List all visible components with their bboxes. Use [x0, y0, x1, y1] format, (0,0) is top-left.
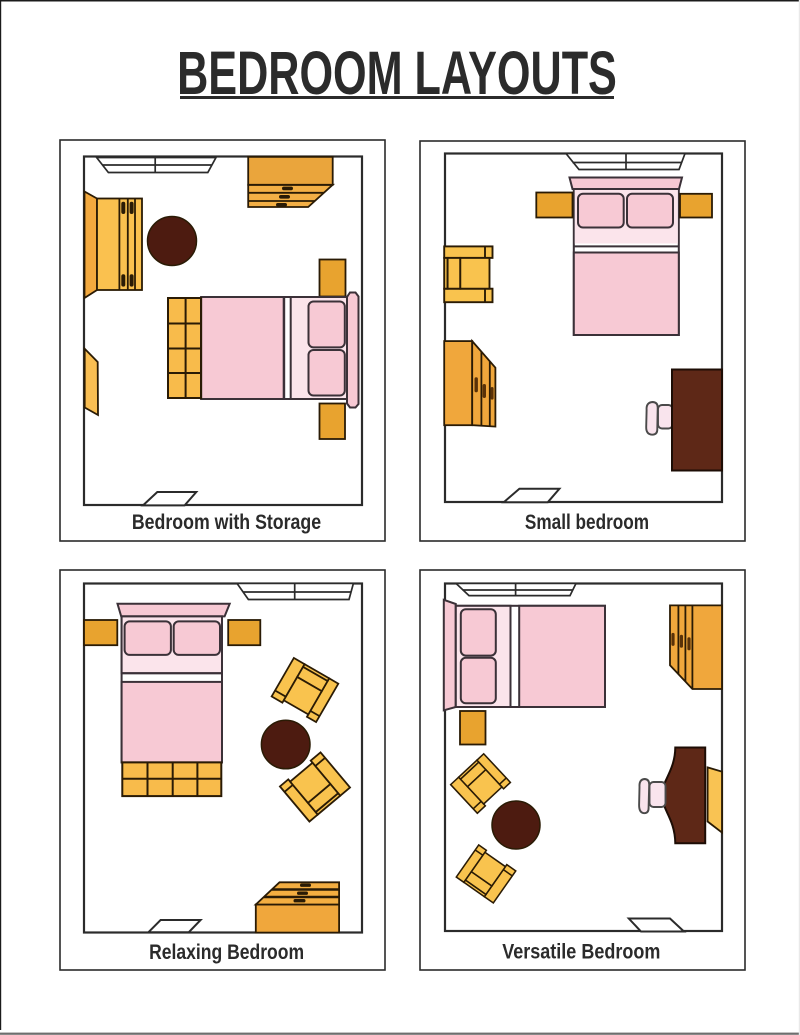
svg-text:Bedroom with Storage: Bedroom with Storage [132, 510, 321, 534]
svg-text:Small bedroom: Small bedroom [525, 510, 649, 534]
svg-text:Relaxing Bedroom: Relaxing Bedroom [149, 940, 304, 964]
svg-text:Versatile Bedroom: Versatile Bedroom [502, 940, 660, 964]
